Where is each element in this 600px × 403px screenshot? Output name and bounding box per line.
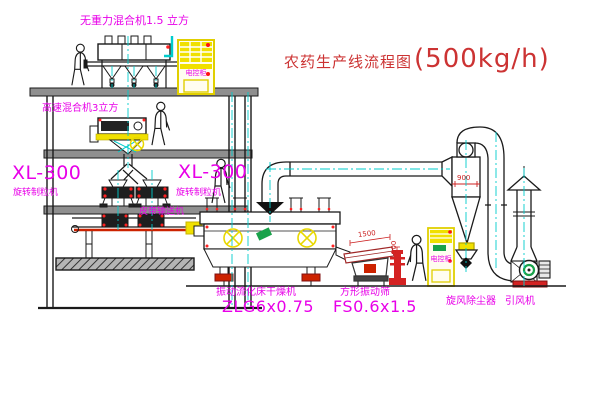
belt-conveyor-label: 皮带输送机 xyxy=(139,208,184,217)
dryer-model-label: ZLG6x0.75 xyxy=(222,299,314,315)
granulator-right-name-label: 旋转制粒机 xyxy=(176,189,221,198)
gravity-free-mixer xyxy=(84,36,183,88)
exhaust-duct xyxy=(256,162,442,215)
cyclone-inlet-dimension: 900 xyxy=(457,175,470,182)
granulator-right-model-label: XL-300 xyxy=(178,163,247,182)
control-cabinet-top xyxy=(178,40,214,94)
diagram-title: 农药生产线流程图 (500kg/h) xyxy=(284,44,550,74)
cabinet-top-label: 电控柜 xyxy=(180,70,212,77)
granulator-left-model-label: XL-300 xyxy=(12,164,81,183)
worker-roof xyxy=(72,44,89,85)
title-capacity: (500kg/h) xyxy=(414,44,550,74)
granulator-left-name-label: 旋转制粒机 xyxy=(13,189,58,198)
title-text: 农药生产线流程图 xyxy=(284,51,412,72)
flow-diagram-canvas: 农药生产线流程图 (500kg/h) 无重力混合机1.5 立方 高速混合机3立方… xyxy=(0,0,600,403)
worker-ground xyxy=(407,235,426,280)
high-speed-mixer-label: 高速混合机3立方 xyxy=(42,104,118,114)
screen-height-dimension: 500 xyxy=(391,241,398,254)
high-speed-mixer xyxy=(90,118,148,154)
screen-model-label: FS0.6x1.5 xyxy=(333,299,417,315)
fan-label: 引风机 xyxy=(505,297,535,307)
cabinet-ground-label: 电控柜 xyxy=(428,256,454,263)
cyclone-label: 旋风除尘器 xyxy=(446,297,496,307)
belt-conveyor xyxy=(56,214,202,270)
worker-floor2 xyxy=(152,102,170,145)
gravity-mixer-label: 无重力混合机1.5 立方 xyxy=(80,15,189,26)
